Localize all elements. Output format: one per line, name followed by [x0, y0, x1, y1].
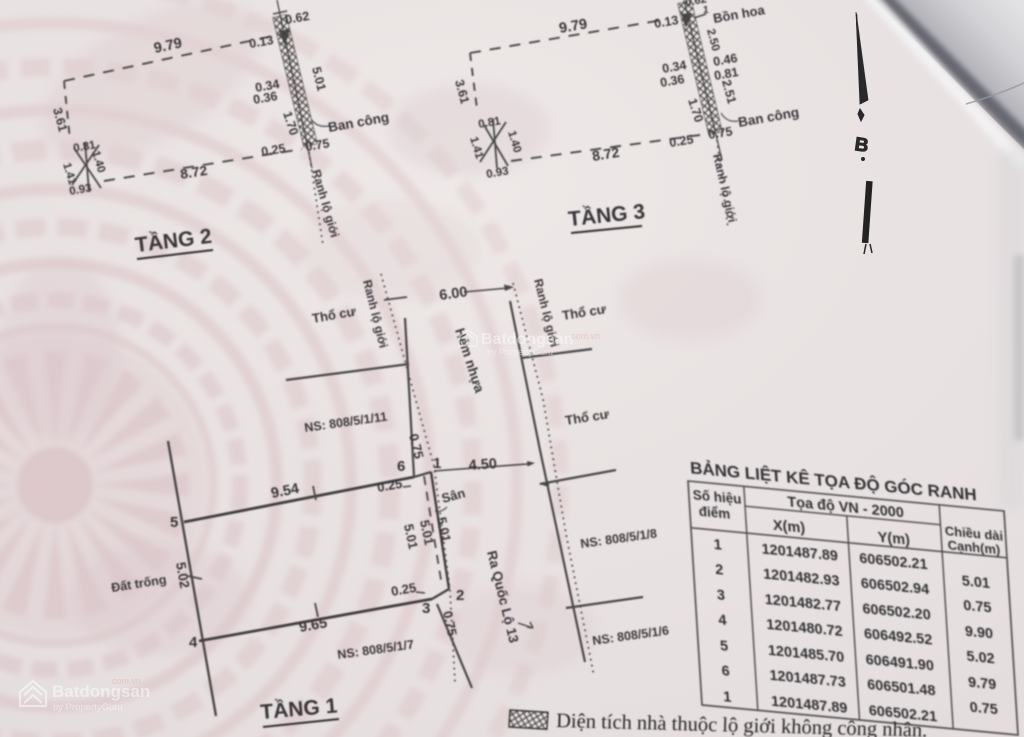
svg-text:5: 5	[720, 638, 729, 655]
svg-text:5.02: 5.02	[966, 649, 995, 668]
svg-text:4.50: 4.50	[468, 456, 497, 474]
svg-text:5: 5	[170, 514, 178, 531]
svg-text:5.01: 5.01	[961, 573, 990, 592]
svg-text:B: B	[853, 134, 870, 157]
svg-text:3: 3	[422, 600, 430, 617]
svg-text:by PropertyGuru: by PropertyGuru	[487, 347, 553, 357]
svg-text:by PropertyGuru: by PropertyGuru	[53, 702, 123, 713]
svg-text:Batdongsan: Batdongsan	[481, 331, 573, 348]
svg-text:4: 4	[189, 634, 198, 651]
svg-text:X(m): X(m)	[773, 518, 806, 537]
svg-text:0.75: 0.75	[969, 700, 998, 719]
svg-text:9.90: 9.90	[965, 624, 994, 643]
svg-text:4: 4	[718, 613, 727, 630]
svg-text:2: 2	[456, 587, 464, 604]
svg-text:1: 1	[703, 5, 709, 16]
svg-text:com.vn: com.vn	[112, 676, 141, 686]
svg-text:1: 1	[723, 689, 732, 706]
svg-text:Y(m): Y(m)	[877, 530, 910, 549]
svg-text:1: 1	[713, 537, 722, 554]
svg-text:6: 6	[397, 458, 405, 475]
svg-text:1: 1	[433, 455, 441, 472]
svg-text:3: 3	[716, 588, 725, 605]
svg-text:2: 2	[715, 562, 724, 579]
svg-text:0.75: 0.75	[963, 598, 992, 617]
svg-text:điểm: điểm	[698, 504, 730, 522]
svg-text:9.79: 9.79	[968, 675, 997, 694]
svg-text:com.vn: com.vn	[571, 331, 600, 341]
svg-text:6: 6	[721, 663, 730, 680]
